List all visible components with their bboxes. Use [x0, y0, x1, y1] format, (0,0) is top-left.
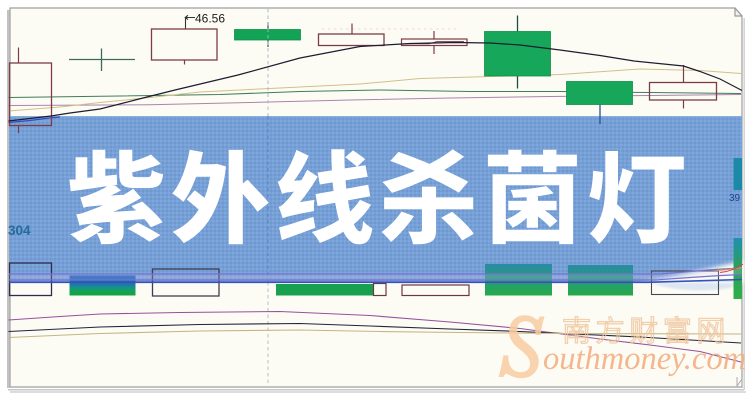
svg-text:304: 304: [8, 223, 31, 238]
svg-text:46.56: 46.56: [195, 12, 225, 26]
svg-text:39: 39: [729, 193, 741, 204]
svg-text:outhmoney.com: outhmoney.com: [543, 341, 746, 377]
